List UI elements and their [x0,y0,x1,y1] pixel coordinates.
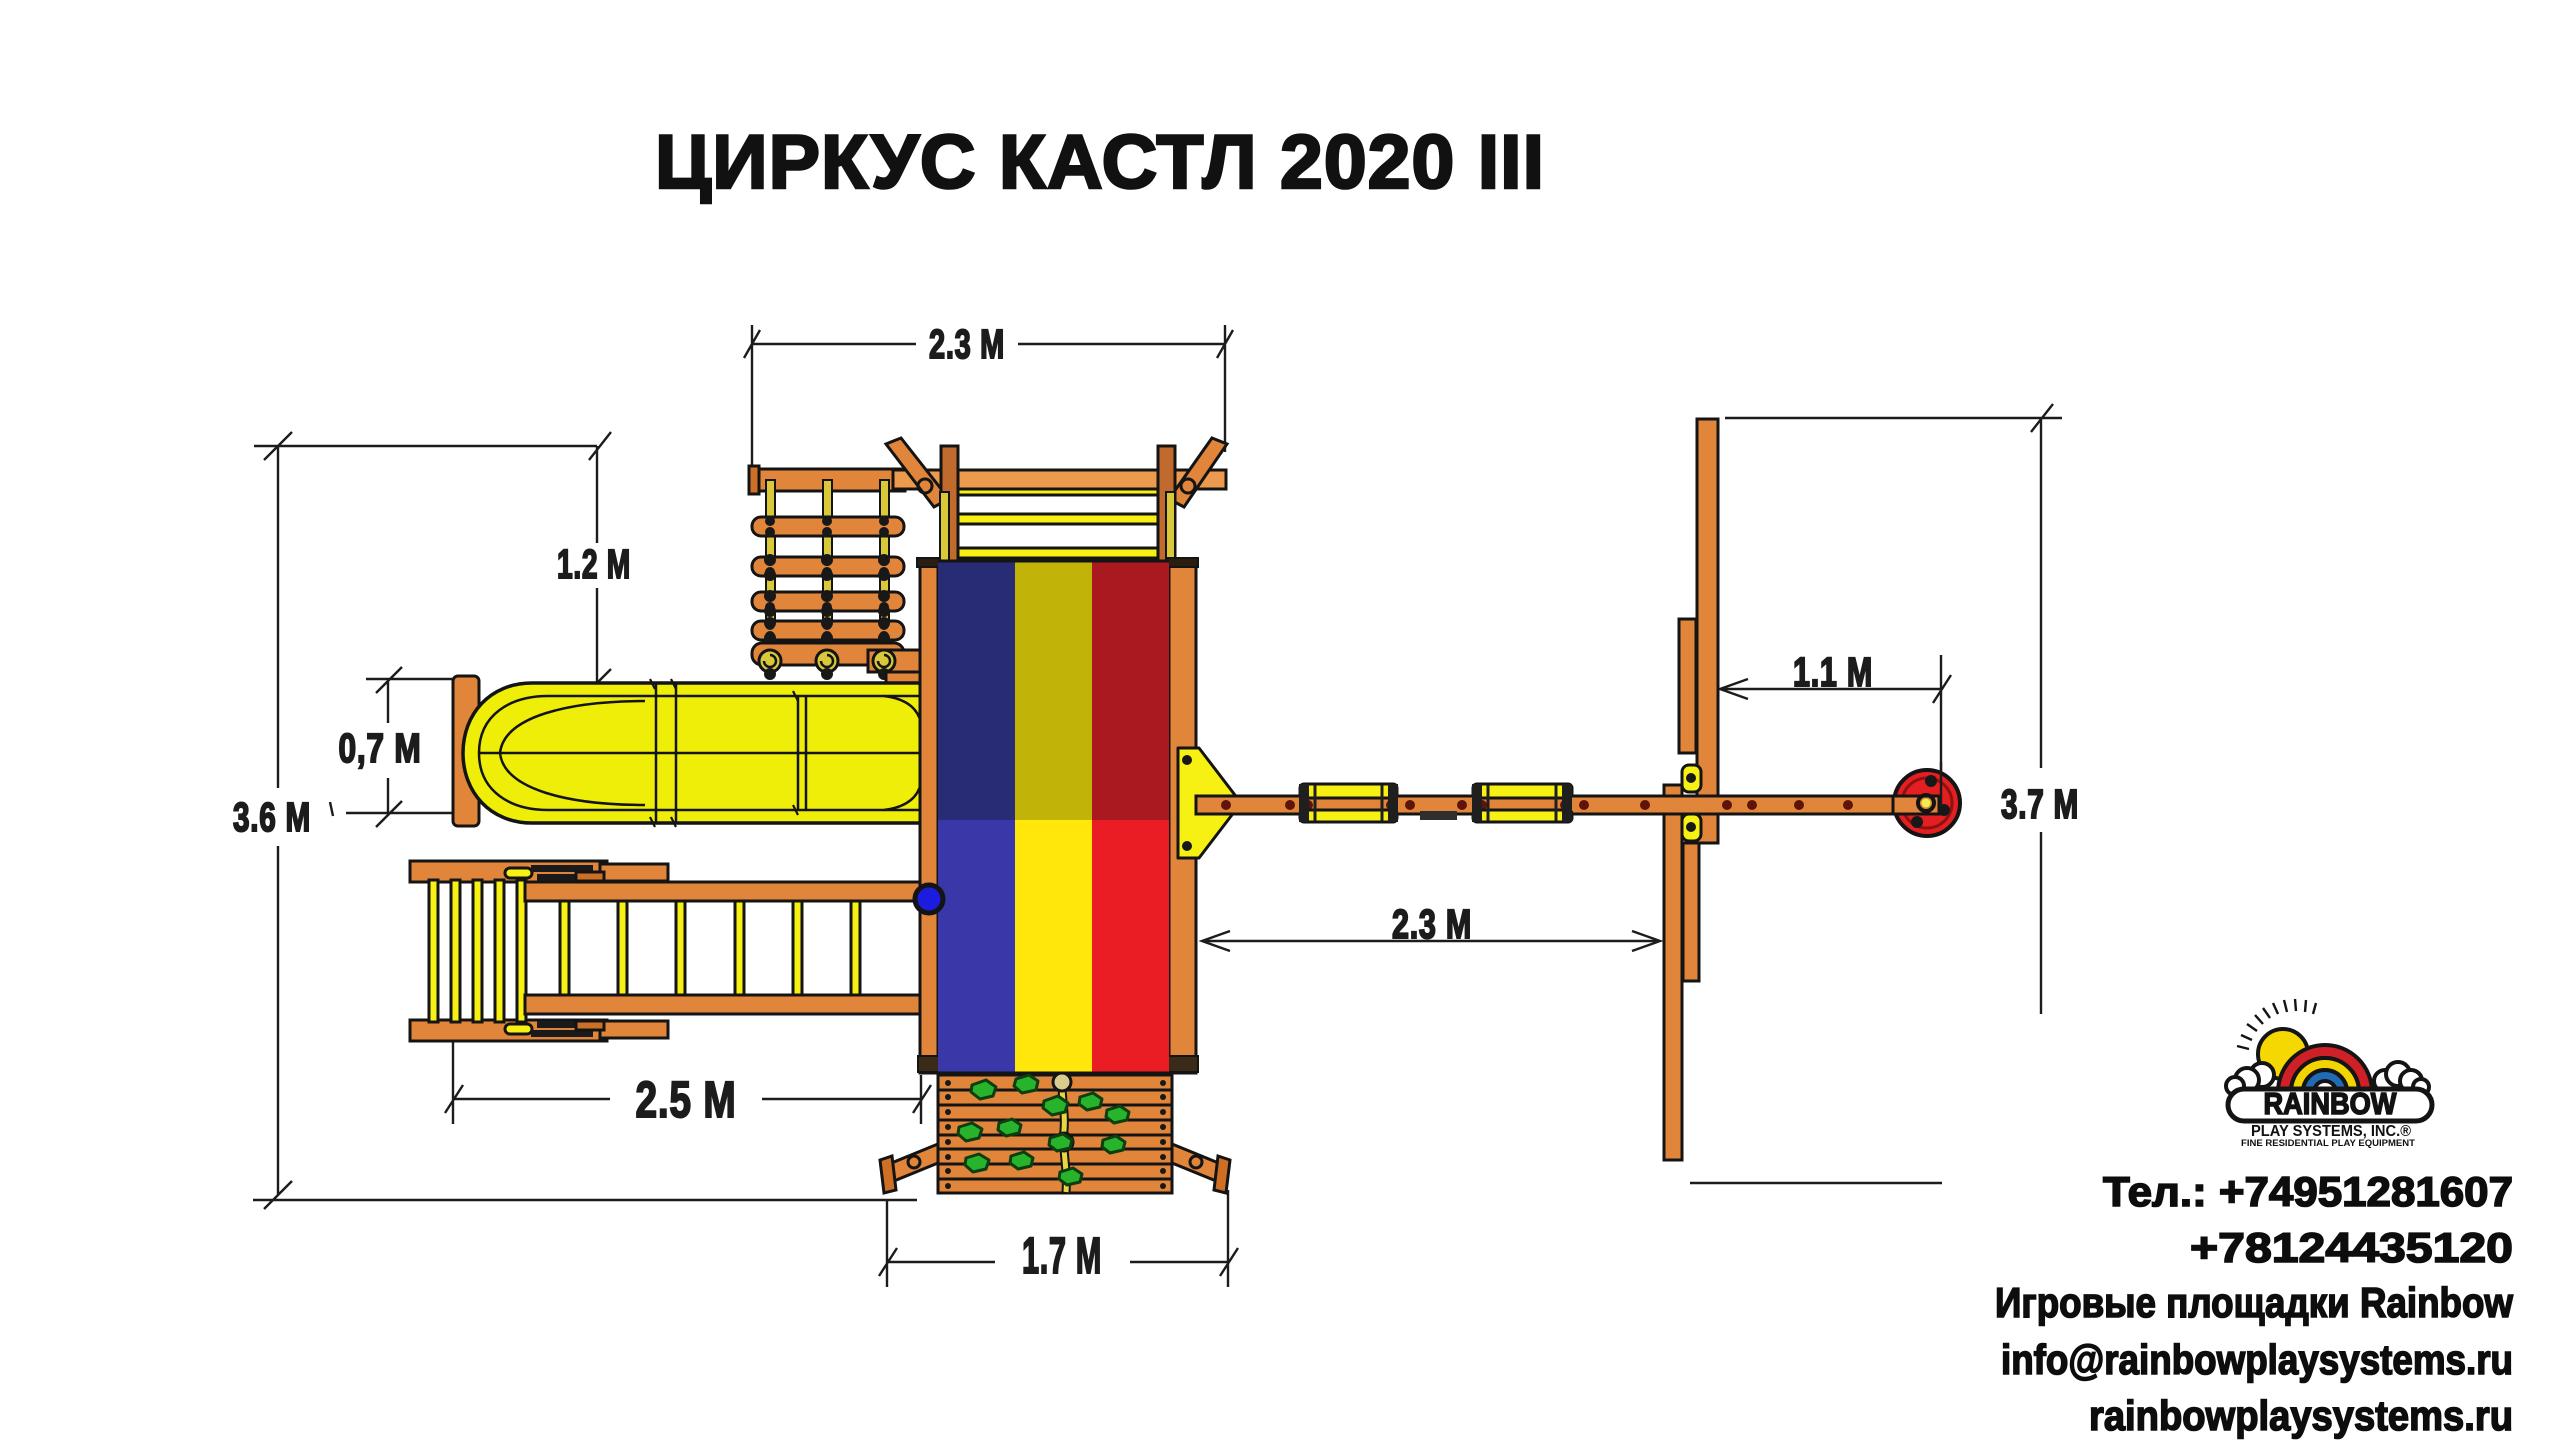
svg-text:Игровые площадки Rainbow: Игровые площадки Rainbow [1995,1279,2513,1326]
svg-text:2.5 M: 2.5 M [636,1071,737,1128]
svg-text:info@rainbowplaysystems.ru: info@rainbowplaysystems.ru [2001,1336,2513,1383]
svg-text:1.1 M: 1.1 M [1793,649,1873,695]
svg-text:Тел.: +74951281607: Тел.: +74951281607 [2103,1168,2513,1215]
svg-text:RAINBOW: RAINBOW [2264,1086,2398,1121]
svg-text:2.3 M: 2.3 M [1392,901,1472,947]
svg-text:1.2 M: 1.2 M [557,541,631,587]
svg-text:ЦИРКУС КАСТЛ 2020 III: ЦИРКУС КАСТЛ 2020 III [655,120,1545,205]
svg-text:+78124435120: +78124435120 [2190,1224,2513,1271]
svg-text:1.7 M: 1.7 M [1022,1227,1102,1284]
svg-text:3.7 M: 3.7 M [2001,781,2079,827]
svg-text:FINE RESIDENTIAL PLAY EQUIPMEN: FINE RESIDENTIAL PLAY EQUIPMENT [2241,1138,2416,1148]
svg-text:3.6 M: 3.6 M [233,794,311,840]
svg-text:0,7 M: 0,7 M [339,725,422,771]
svg-text:2.3 M: 2.3 M [929,321,1005,367]
svg-text:rainbowplaysystems.ru: rainbowplaysystems.ru [2089,1392,2513,1439]
